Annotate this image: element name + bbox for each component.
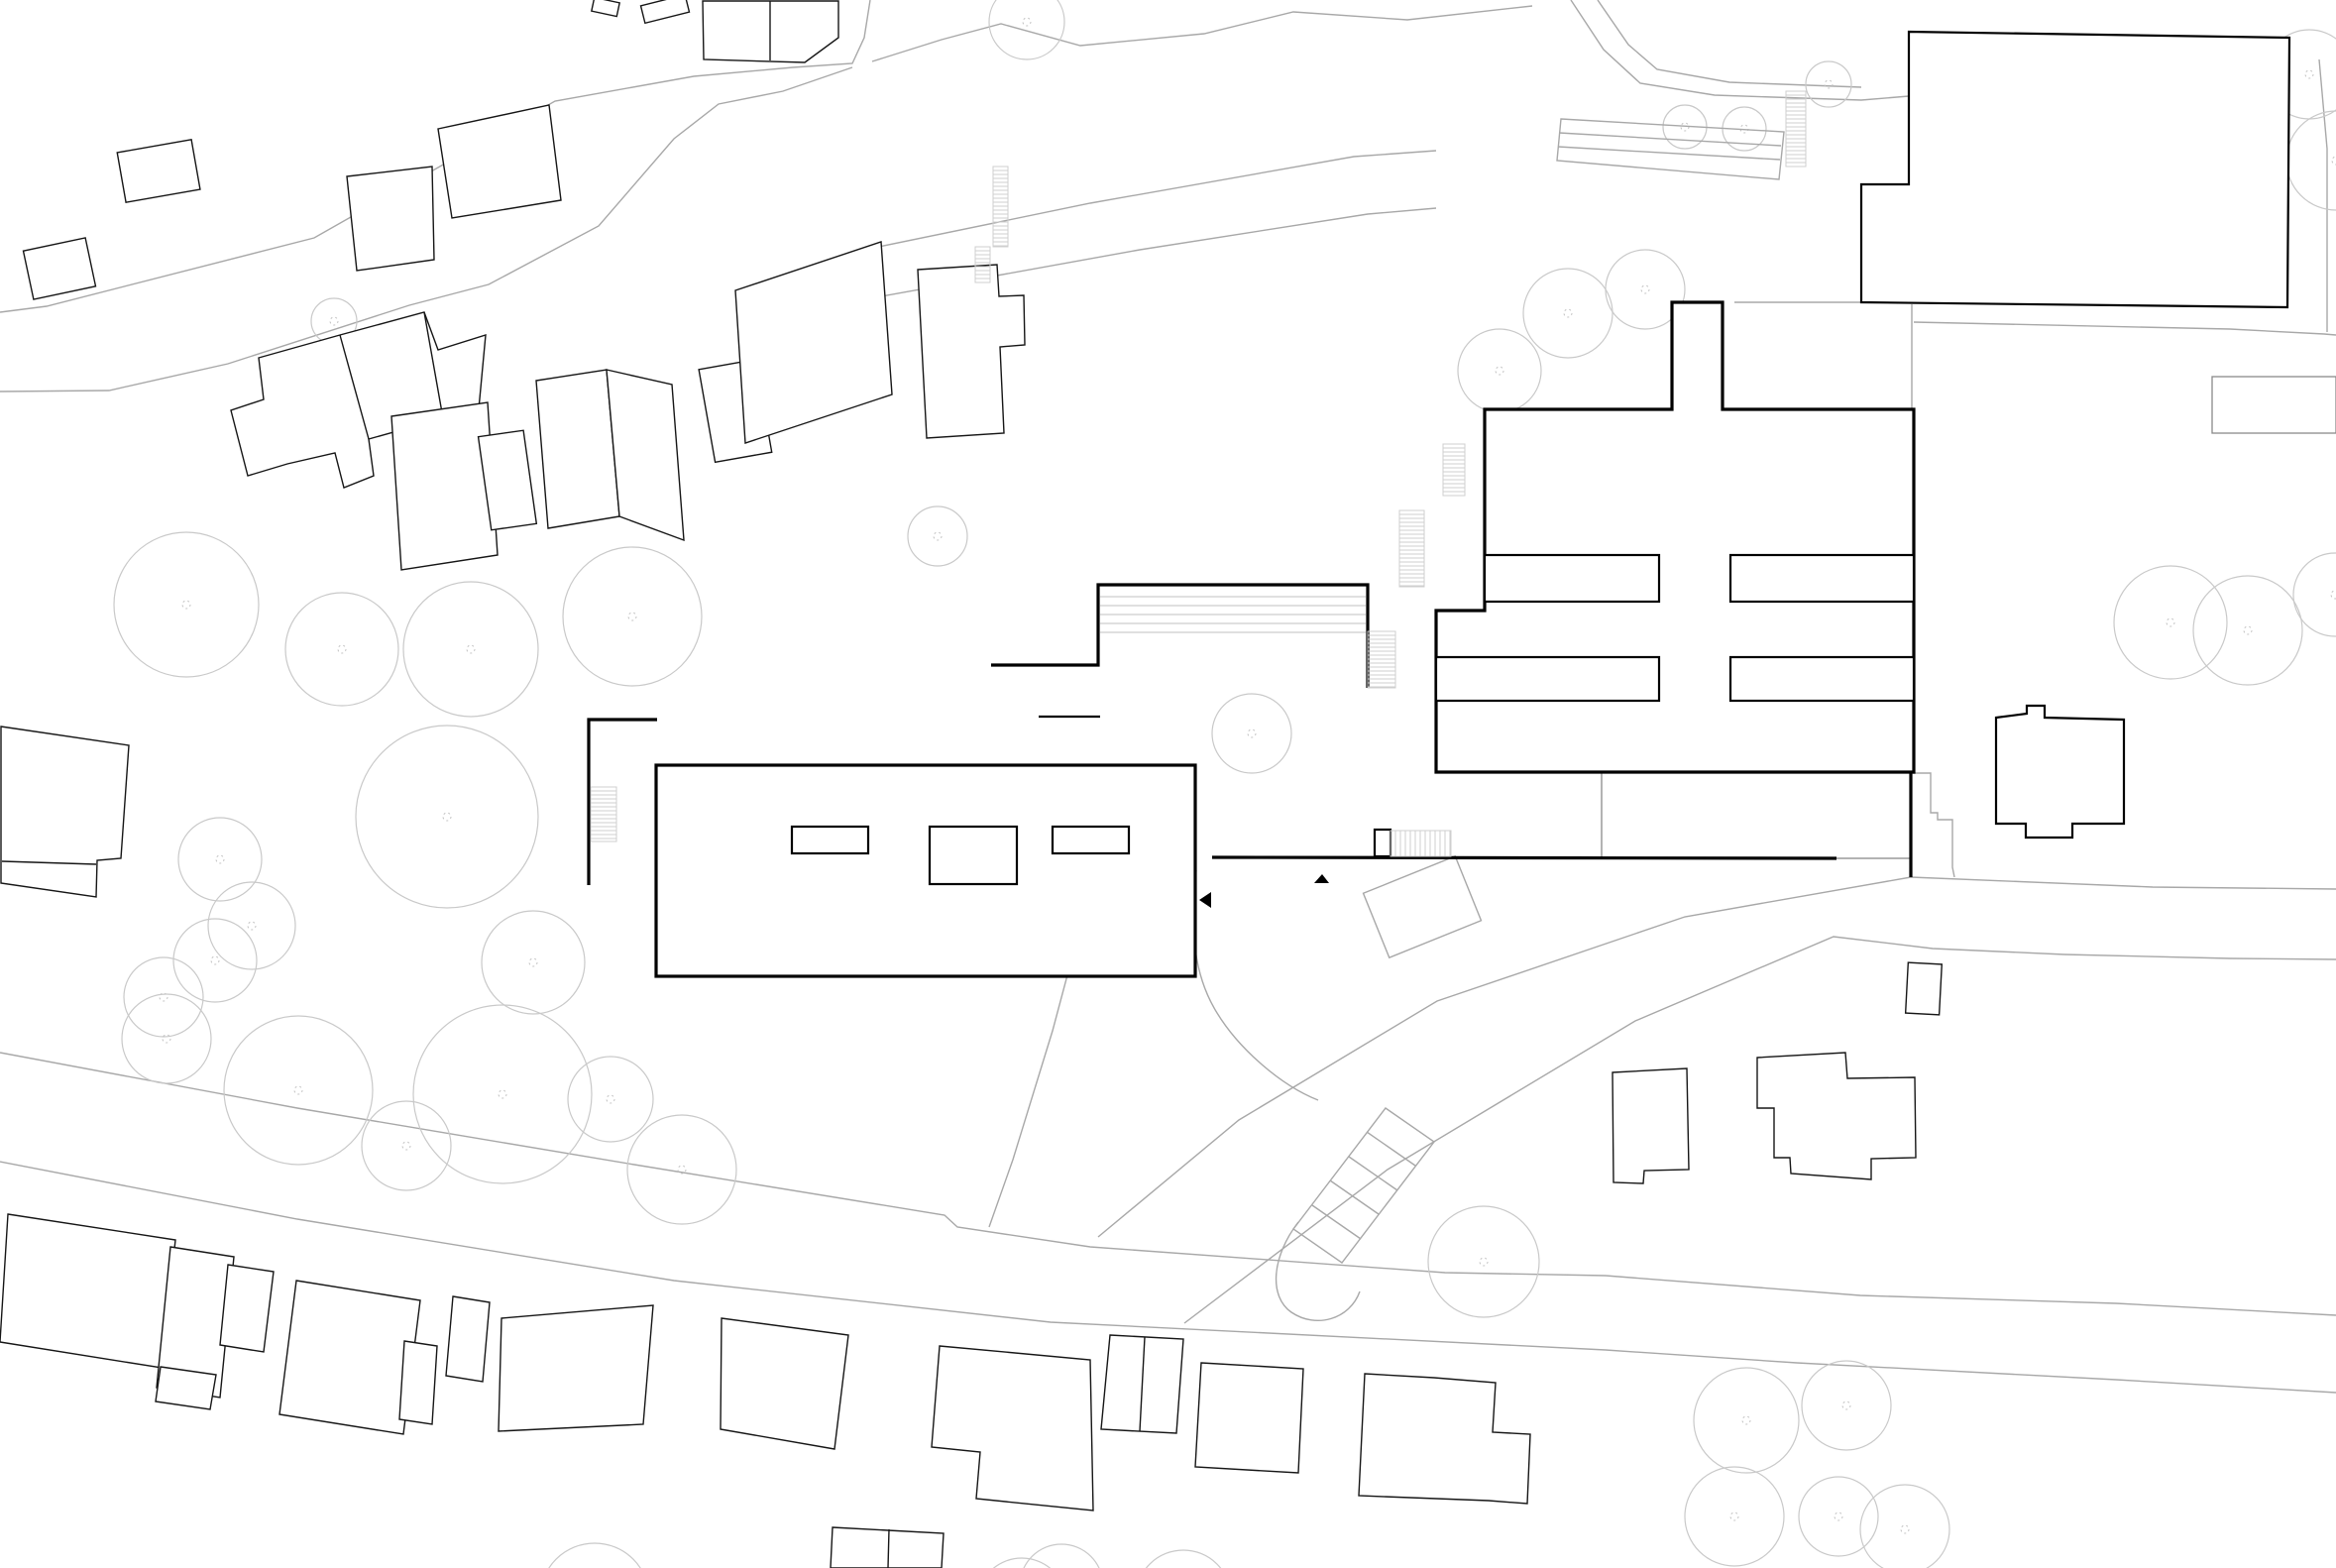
roof-fragment — [641, 0, 690, 23]
north-road-east-edge — [872, 6, 1532, 61]
house — [1613, 1068, 1689, 1183]
annex-east-steps — [1913, 773, 1954, 877]
entry-arrow-west — [1199, 892, 1211, 908]
house — [117, 140, 200, 202]
house — [932, 1346, 1093, 1511]
tree-symbol — [977, 1558, 1066, 1568]
rowhouse — [156, 1367, 216, 1409]
site-plan — [0, 0, 2336, 1568]
tree-symbol — [208, 882, 295, 969]
stair — [1443, 444, 1465, 496]
ne-terrace-line-2 — [1558, 147, 1780, 160]
south-road-north-edge — [0, 1053, 2336, 1315]
tree-symbol — [1020, 1544, 1103, 1568]
existing-hall — [1861, 32, 2289, 307]
east-edge-path — [2319, 59, 2327, 332]
east-road-upper-edge — [1098, 877, 2336, 1237]
tree-symbol — [2114, 566, 2227, 679]
twin-house-divider — [888, 1529, 889, 1568]
tree-symbol — [362, 1101, 451, 1190]
ne-corner-road-a — [1571, 0, 1909, 100]
house — [735, 242, 892, 443]
long-wall — [1212, 857, 1836, 858]
house — [1359, 1374, 1530, 1504]
stair — [993, 167, 1008, 247]
house — [499, 1305, 653, 1431]
tree-symbol — [1212, 694, 1291, 773]
tree-symbol — [1458, 329, 1541, 412]
east-road-lower-edge — [1184, 937, 2336, 1323]
house — [1195, 1363, 1303, 1473]
tree-symbol — [540, 1543, 649, 1568]
tree-symbol — [356, 726, 538, 908]
roof-fragment — [592, 0, 619, 17]
tree-symbol — [563, 547, 702, 686]
parking-stall-4 — [1312, 1205, 1361, 1239]
house — [536, 370, 619, 528]
tree-symbol — [122, 994, 211, 1083]
bus-shelter — [1364, 856, 1482, 957]
parking-strip — [1293, 1108, 1434, 1263]
parking-stall-3 — [1330, 1180, 1379, 1214]
house — [279, 1281, 420, 1434]
school-wing-bar — [1436, 657, 1659, 701]
parking-stall-1 — [1367, 1132, 1415, 1166]
annotations — [1199, 874, 1329, 908]
school-wing-bar — [1485, 555, 1659, 602]
turning-bulb — [1277, 1222, 1360, 1320]
main-building — [656, 765, 1195, 976]
site-plan-canvas — [0, 0, 2336, 1568]
tree-symbol — [1523, 269, 1613, 358]
house — [1757, 1053, 1916, 1179]
tree-symbol — [285, 593, 398, 706]
house — [1, 727, 129, 897]
tree-symbol — [908, 506, 967, 566]
hall-south-path — [1914, 322, 2336, 335]
tree-symbol — [2293, 553, 2336, 636]
tree-symbol — [1685, 1467, 1784, 1566]
tree-symbol — [989, 0, 1064, 59]
tree-symbol — [1860, 1485, 1949, 1568]
tree-symbol — [2193, 576, 2302, 685]
stair — [1368, 631, 1395, 688]
tree-symbol — [224, 1016, 373, 1165]
tree-symbol — [413, 1005, 592, 1183]
house — [721, 1318, 848, 1449]
house — [438, 105, 561, 218]
driveway-east-curve — [1193, 870, 1318, 1100]
hall-northeast — [1861, 32, 2289, 307]
house — [1996, 706, 2124, 838]
house-annex — [446, 1296, 490, 1382]
tree-symbol — [568, 1057, 653, 1142]
parking-stall-2 — [1349, 1157, 1397, 1190]
tree-symbol — [1136, 1550, 1231, 1568]
tree-symbol — [173, 919, 257, 1002]
ramp — [1100, 597, 1366, 632]
new-building — [656, 765, 1195, 976]
stair — [1399, 510, 1424, 587]
shed — [1906, 962, 1943, 1015]
school-north-path-a — [864, 151, 1436, 250]
tree-symbol — [1806, 61, 1851, 107]
stair — [1786, 91, 1806, 167]
house — [391, 402, 498, 570]
ne-corner-road-b — [1598, 0, 1861, 87]
tree-symbol — [1428, 1206, 1539, 1317]
house — [918, 265, 1025, 438]
house — [24, 238, 96, 299]
tree-symbol — [1802, 1361, 1891, 1450]
twin-house — [831, 1527, 944, 1568]
tree-symbol — [1799, 1477, 1878, 1556]
tree-symbol — [627, 1115, 736, 1224]
tree-symbol — [482, 911, 585, 1014]
tree-symbol — [124, 957, 203, 1037]
rooflight — [930, 827, 1017, 884]
stair — [591, 787, 616, 841]
ne-terrace-line-1 — [1559, 133, 1781, 146]
tree-symbol — [403, 582, 538, 717]
school-wing-bar — [1730, 657, 1914, 701]
stair — [1390, 831, 1451, 856]
entry-arrow-north — [1314, 874, 1329, 883]
house — [347, 167, 434, 271]
ramp-retaining-wall — [991, 585, 1368, 688]
rowhouse — [0, 1214, 175, 1368]
school-annex — [1602, 772, 1911, 858]
school-wing-bar — [1730, 555, 1914, 602]
tree-symbol — [2286, 111, 2336, 210]
tree-symbol — [1694, 1368, 1799, 1473]
tree-symbol — [178, 818, 262, 901]
wall-stair-box — [1375, 830, 1390, 856]
tree-symbol — [114, 532, 259, 677]
rooflight — [1053, 827, 1129, 853]
rooflight — [792, 827, 868, 853]
rowhouse — [220, 1265, 274, 1352]
barn — [2212, 377, 2336, 433]
house-annex — [399, 1341, 437, 1424]
